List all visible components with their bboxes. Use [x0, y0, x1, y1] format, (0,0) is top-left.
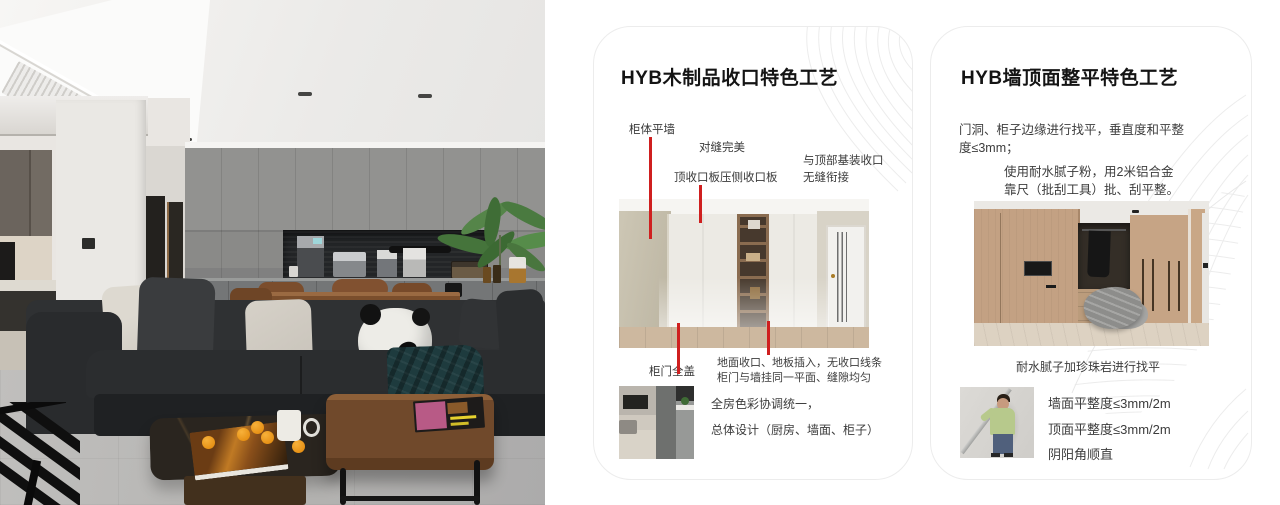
leveling-paragraph: 门洞、柜子边缘进行找平，垂直度和平整 度≤3mm；: [959, 122, 1184, 157]
wood-floor: [974, 323, 1209, 346]
door-handle: [1046, 285, 1056, 288]
wall-switch: [1203, 263, 1208, 268]
card-woodwork: HYB木制品收口特色工艺 柜体平墙 对缝完美 顶收口板压侧收口板 与顶部基装收口…: [593, 26, 913, 480]
wardrobe-render-image: [619, 199, 869, 348]
hanging-clothes: [1087, 231, 1111, 278]
bottle: [493, 265, 501, 283]
grey-column: [656, 386, 676, 459]
spec-item: 阴阳角顺直: [1048, 442, 1171, 468]
worker-photo: [960, 387, 1034, 458]
downlight: [1132, 210, 1139, 213]
orange: [261, 431, 274, 444]
vase: [509, 257, 526, 283]
leader-line: [649, 137, 652, 239]
leader-line: [699, 185, 702, 223]
orange: [237, 428, 250, 441]
panda-ear: [412, 308, 430, 326]
flatness-specs: 墙面平整度≤3mm/2m 顶面平整度≤3mm/2m 阴阳角顺直: [1048, 391, 1171, 468]
bottle: [483, 267, 491, 283]
lever-machine: [403, 248, 426, 277]
card-wall-title: HYB墙顶面整平特色工艺: [961, 63, 1178, 90]
tv-screen: [623, 395, 648, 409]
far-wall: [1202, 213, 1209, 335]
panda-ear: [360, 304, 381, 325]
wood-wall-door: [974, 209, 1080, 335]
wood-floor: [619, 327, 869, 348]
callout-cabinet-flat-wall: 柜体平墙: [629, 121, 675, 137]
interior-thumbnail: [619, 386, 694, 459]
door-knob: [831, 274, 835, 278]
leader-line: [677, 323, 680, 374]
callout-perfect-seam: 对缝完美: [699, 139, 745, 155]
orange: [202, 436, 215, 449]
hallway-photo: [974, 201, 1209, 346]
callout-top-closing-panel: 顶收口板压侧收口板: [674, 169, 778, 185]
callout-full-cover-door: 柜门全盖: [649, 363, 695, 379]
card-woodwork-title: HYB木制品收口特色工艺: [621, 63, 838, 90]
page: HYB木制品收口特色工艺 柜体平墙 对缝完美 顶收口板压侧收口板 与顶部基装收口…: [0, 0, 1280, 505]
worker-jeans: [993, 434, 1013, 454]
leader-line: [767, 321, 770, 355]
mug: [277, 410, 301, 441]
kitchen-upper-cabinet: [0, 150, 52, 239]
plant: [455, 195, 545, 285]
espresso-machine: [377, 250, 397, 277]
magazine: [413, 397, 485, 433]
cup-rack: [333, 252, 366, 277]
control-panel: [1024, 261, 1052, 276]
spec-item: 顶面平整度≤3mm/2m: [1048, 417, 1171, 443]
closet-niche: [1078, 223, 1130, 289]
design-summary: 全房色彩协调统一， 总体设计（厨房、墙面、柜子）: [711, 391, 879, 443]
callout-ceiling-joint: 与顶部基装收口 无缝衔接: [803, 153, 884, 187]
living-room-photo: [0, 0, 545, 505]
light-switch: [82, 238, 95, 249]
card-wall-leveling: HYB墙顶面整平特色工艺 门洞、柜子边缘进行找平，垂直度和平整 度≤3mm； 使…: [930, 26, 1252, 480]
spec-item: 墙面平整度≤3mm/2m: [1048, 391, 1171, 417]
floor-joint-note: 地面收口、地板插入，无收口线条 柜门与墙挂同一平面、缝隙均匀: [717, 356, 882, 386]
interior-door: [826, 225, 866, 331]
kitchen-strip: [676, 386, 694, 459]
sling-chair: [0, 402, 80, 505]
putty-caption: 耐水腻子加珍珠岩进行找平: [1016, 358, 1160, 375]
downlight: [418, 94, 432, 98]
orange: [292, 440, 305, 453]
putty-paragraph: 使用耐水腻子粉，用2米铝合金 靠尺（批刮工具）批、刮平整。: [1004, 164, 1179, 199]
downlight: [298, 92, 312, 96]
cup: [289, 266, 298, 277]
